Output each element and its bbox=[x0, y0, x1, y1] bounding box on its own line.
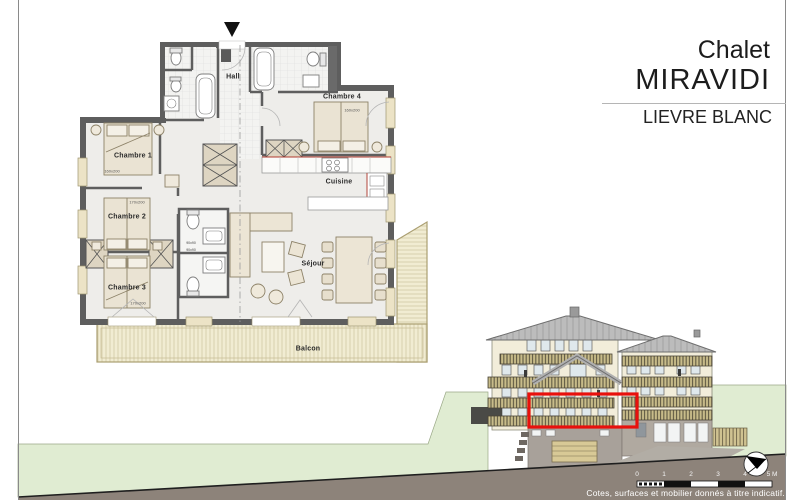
balcony-bottom bbox=[97, 324, 427, 362]
garage-door bbox=[552, 441, 597, 462]
chalet-title-line2: MIRAVIDI bbox=[635, 64, 770, 96]
scale-tick-5: 5 M bbox=[767, 471, 778, 478]
shower-dim-2: 90x90 bbox=[186, 248, 196, 252]
scale-tick-1: 1 bbox=[662, 471, 666, 478]
scale-tick-4: 4 bbox=[743, 471, 747, 478]
shaft bbox=[328, 46, 337, 91]
chimney bbox=[570, 307, 579, 317]
chalet-title-line1: Chalet bbox=[635, 36, 770, 64]
roof-left bbox=[486, 316, 660, 340]
bed-dim-chambre1: 160x200 bbox=[104, 169, 119, 174]
scale-tick-3: 3 bbox=[716, 471, 720, 478]
scale-tick-0: 0 bbox=[635, 471, 639, 478]
bed-dim-chambre4: 160x200 bbox=[344, 108, 359, 113]
drawing-sheet: Chalet MIRAVIDI LIEVRE BLANC Hall Chambr… bbox=[0, 0, 800, 500]
project-name: LIEVRE BLANC bbox=[643, 107, 772, 128]
page-border-left bbox=[18, 0, 19, 500]
floor-plan bbox=[78, 22, 427, 362]
room-label-balcon: Balcon bbox=[296, 346, 321, 353]
title-block: Chalet MIRAVIDI bbox=[635, 36, 770, 96]
shower-dim-1: 90x90 bbox=[186, 241, 196, 245]
chimney-2 bbox=[694, 330, 700, 337]
scale-tick-2: 2 bbox=[689, 471, 693, 478]
room-label-chambre1: Chambre 1 bbox=[114, 153, 152, 160]
scale-bar bbox=[637, 481, 772, 487]
hill-right bbox=[710, 385, 786, 458]
bed-dim-chambre3: 170x200 bbox=[130, 301, 145, 306]
title-separator bbox=[602, 103, 786, 104]
room-label-chambre3: Chambre 3 bbox=[108, 285, 146, 292]
compass-north-icon bbox=[744, 452, 768, 476]
fence bbox=[713, 428, 747, 446]
room-label-hall: Hall bbox=[226, 74, 240, 81]
disclaimer-text: Cotes, surfaces et mobilier donnés à tit… bbox=[586, 488, 785, 498]
room-label-chambre2: Chambre 2 bbox=[108, 214, 146, 221]
entrance-arrow-icon bbox=[224, 22, 240, 37]
room-label-cuisine: Cuisine bbox=[326, 179, 353, 186]
room-label-chambre4: Chambre 4 bbox=[323, 94, 361, 101]
bed-dim-chambre2: 170x200 bbox=[129, 200, 144, 205]
page-border-right bbox=[785, 0, 786, 500]
room-label-sejour: Séjour bbox=[302, 261, 325, 268]
